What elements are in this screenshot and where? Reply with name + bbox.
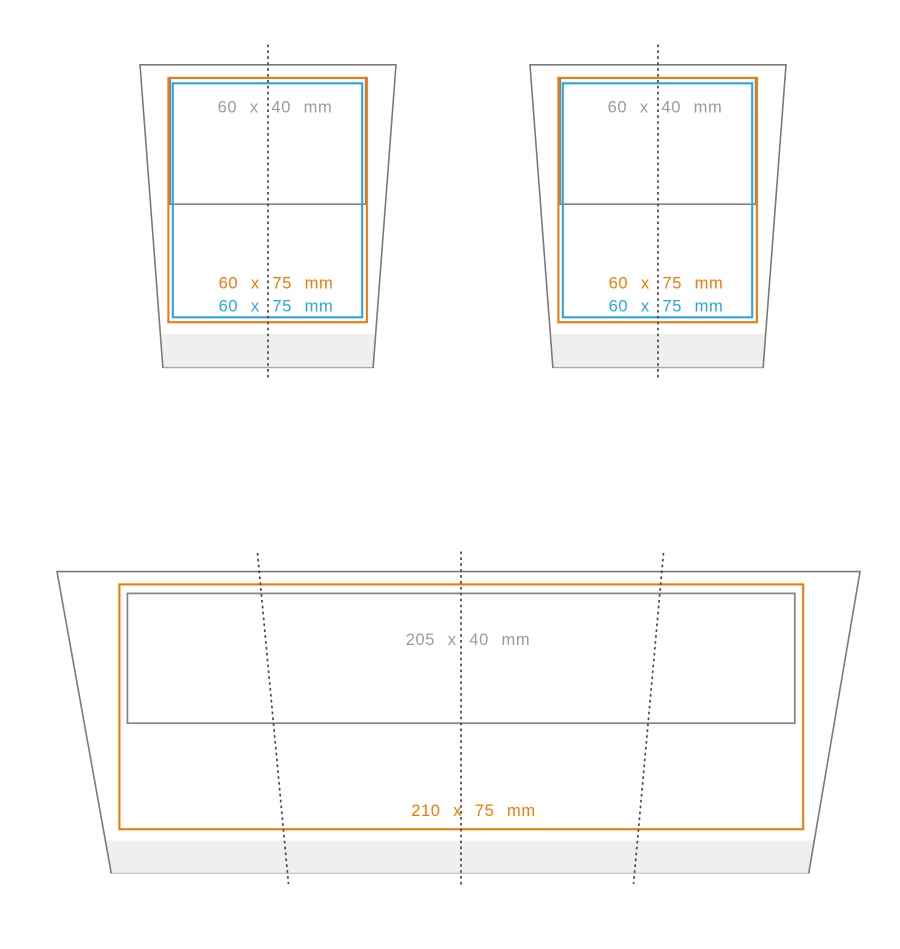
- left-fold-dotted-line: [258, 553, 289, 884]
- cup-bottom-band: [161, 334, 377, 367]
- cup-figure-left: 60 x 40 mm 60 x 75 mm 60 x 75 mm: [140, 45, 396, 379]
- dimension-label-orange: 60 x 75 mm: [609, 275, 724, 293]
- cup-print-dimensions-diagram: 60 x 40 mm 60 x 75 mm 60 x 75 mm 60 x 40…: [0, 0, 900, 949]
- cup-bottom-band: [551, 334, 767, 367]
- dimension-label-gray: 60 x 40 mm: [608, 99, 723, 117]
- right-fold-dotted-line: [634, 553, 664, 884]
- dimension-label-blue: 60 x 75 mm: [609, 298, 724, 316]
- dimension-label-gray: 205 x 40 mm: [406, 631, 530, 649]
- dimension-label-orange: 210 x 75 mm: [411, 802, 535, 820]
- dimension-label-blue: 60 x 75 mm: [219, 298, 334, 316]
- dimension-label-orange: 60 x 75 mm: [219, 275, 334, 293]
- wrap-figure: 205 x 40 mm 210 x 75 mm: [57, 552, 860, 887]
- cup-figure-right: 60 x 40 mm 60 x 75 mm 60 x 75 mm: [530, 45, 786, 379]
- wrap-bottom-band: [106, 841, 814, 873]
- dimension-label-gray: 60 x 40 mm: [218, 99, 333, 117]
